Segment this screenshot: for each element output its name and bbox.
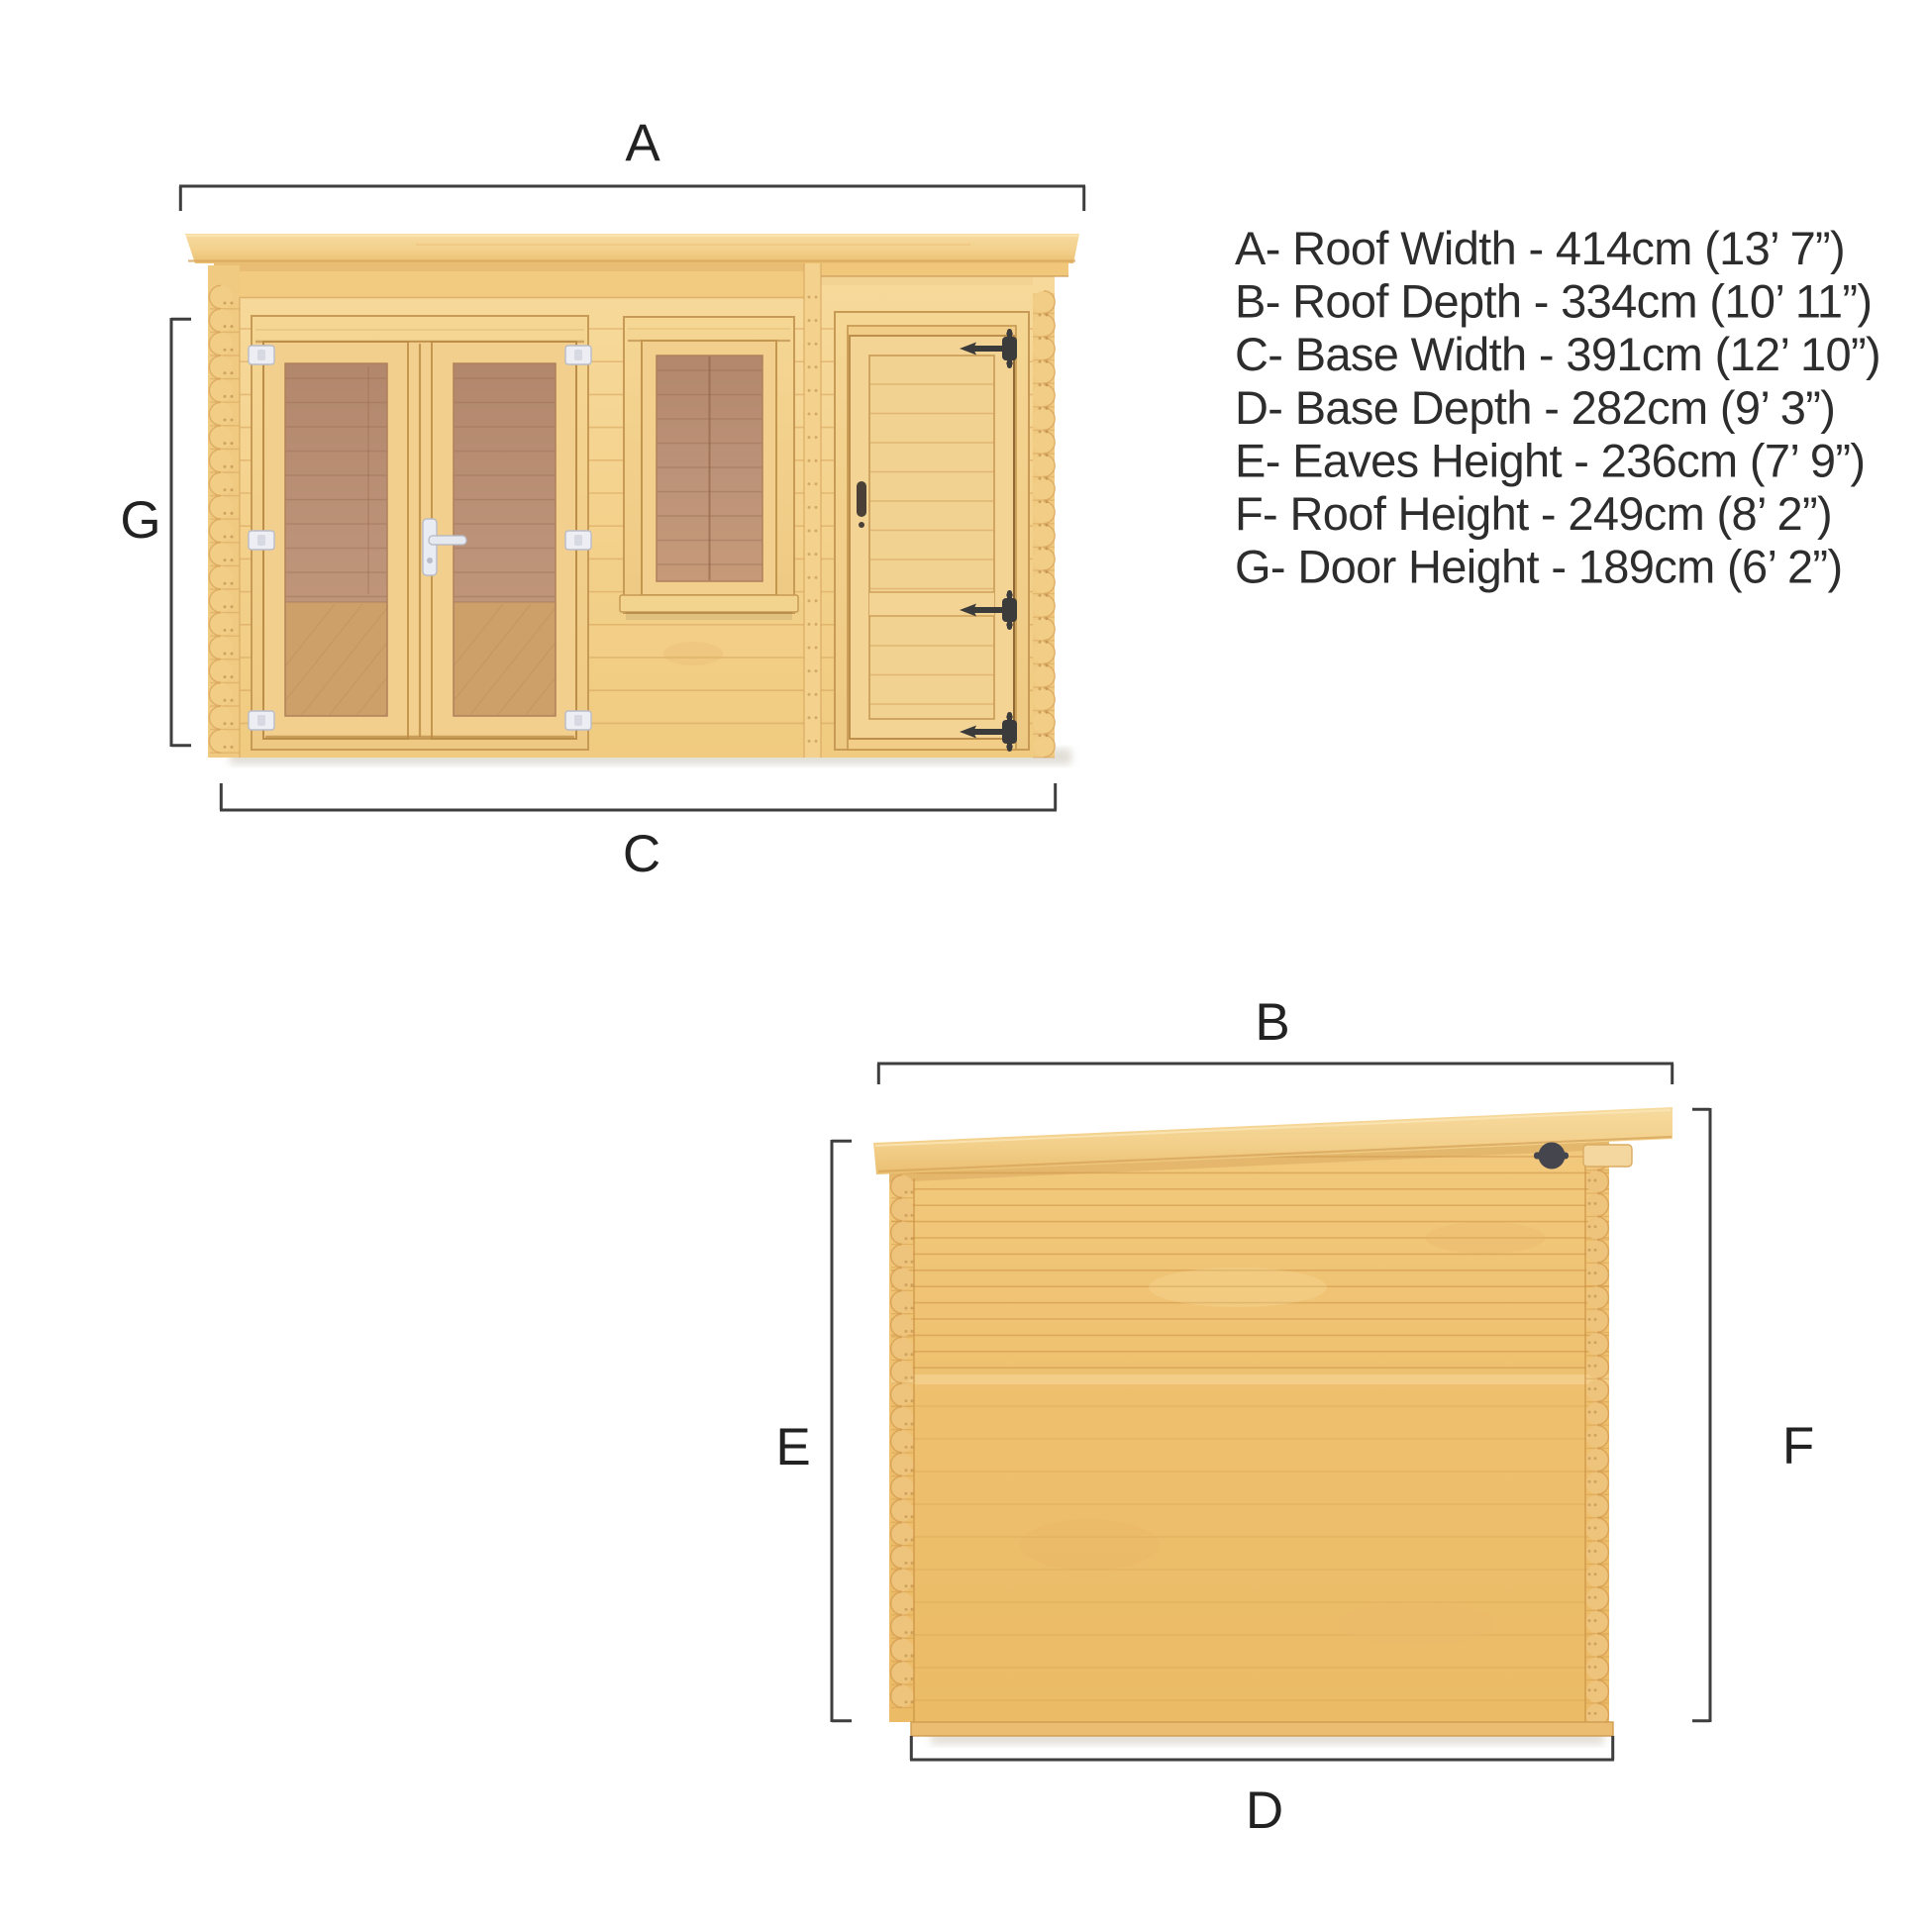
- svg-text:A: A: [625, 114, 660, 172]
- svg-text:D: D: [1246, 1781, 1283, 1840]
- svg-text:E: E: [775, 1418, 810, 1476]
- svg-text:E- Eaves Height - 236cm (7’ 9”: E- Eaves Height - 236cm (7’ 9”): [1235, 434, 1865, 486]
- svg-text:C- Base Width - 391cm (12’ 10”: C- Base Width - 391cm (12’ 10”): [1235, 328, 1880, 380]
- svg-text:B- Roof Depth - 334cm (10’ 11”: B- Roof Depth - 334cm (10’ 11”): [1235, 275, 1872, 328]
- svg-text:D- Base Depth - 282cm (9’ 3”): D- Base Depth - 282cm (9’ 3”): [1235, 381, 1835, 434]
- svg-text:F- Roof Height - 249cm (8’ 2”): F- Roof Height - 249cm (8’ 2”): [1235, 487, 1832, 540]
- svg-text:B: B: [1255, 993, 1289, 1052]
- svg-text:C: C: [623, 825, 660, 883]
- svg-text:G- Door Height - 189cm (6’ 2”): G- Door Height - 189cm (6’ 2”): [1235, 541, 1842, 593]
- svg-text:A- Roof Width - 414cm (13’ 7”): A- Roof Width - 414cm (13’ 7”): [1235, 222, 1845, 274]
- svg-text:G: G: [120, 491, 160, 550]
- svg-text:F: F: [1782, 1417, 1814, 1475]
